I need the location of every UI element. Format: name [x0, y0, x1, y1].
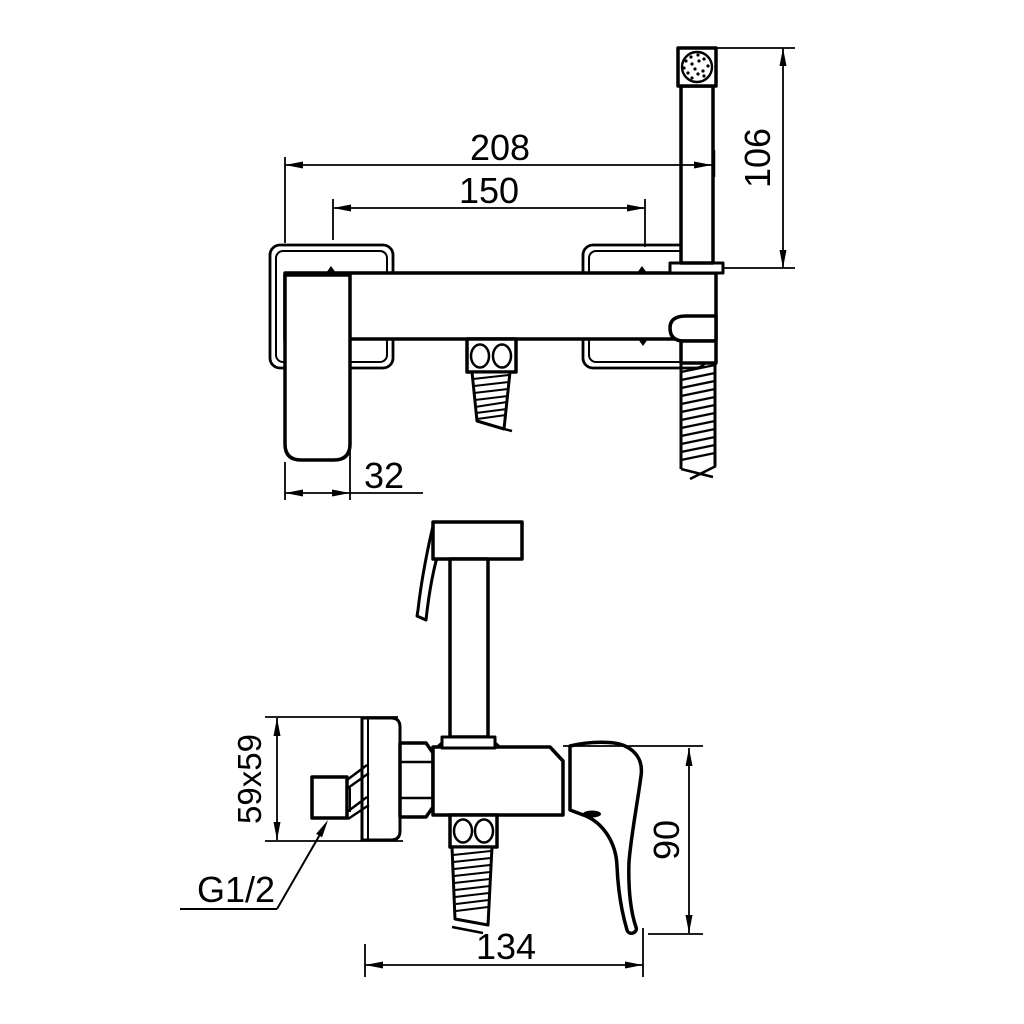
handle-joint-shadow	[583, 811, 601, 818]
dim-59x59-label: 59x59	[231, 734, 268, 824]
mixer-body-side	[433, 747, 563, 815]
hose-tail	[681, 466, 716, 479]
g-half-union-square	[312, 777, 347, 818]
outlet-side	[450, 815, 497, 933]
handshower-handle	[681, 86, 713, 263]
dim-150: 150	[333, 170, 645, 247]
shower-hose	[681, 363, 716, 479]
sprayer-column	[450, 559, 488, 737]
dim-106-label: 106	[737, 128, 778, 188]
dim-90-label: 90	[646, 820, 687, 860]
faucet-drawing: 208 150 106 32	[0, 0, 1024, 1024]
dim-g12: G1/2	[180, 820, 328, 910]
lever-handle-side	[570, 742, 641, 933]
handshower-head	[678, 48, 716, 86]
dim-150-label: 150	[459, 170, 519, 211]
wall-union	[312, 765, 369, 819]
escutcheon-side	[362, 718, 400, 840]
side-view	[312, 522, 641, 933]
technical-drawing-canvas: 208 150 106 32	[0, 0, 1024, 1024]
hose-nut	[681, 341, 716, 363]
dim-134-label: 134	[476, 926, 536, 967]
dim-208-label: 208	[470, 127, 530, 168]
hex-nut	[400, 743, 433, 817]
center-outlet	[467, 339, 516, 431]
dim-32-label: 32	[364, 455, 404, 496]
sprayer-base-flange	[442, 737, 495, 748]
sprayer-head	[433, 522, 522, 559]
dim-g12-label: G1/2	[197, 869, 275, 910]
front-view	[270, 48, 723, 479]
dim-106: 106	[716, 48, 795, 268]
lever-handle-front	[285, 275, 350, 460]
dim-134: 134	[365, 926, 643, 977]
